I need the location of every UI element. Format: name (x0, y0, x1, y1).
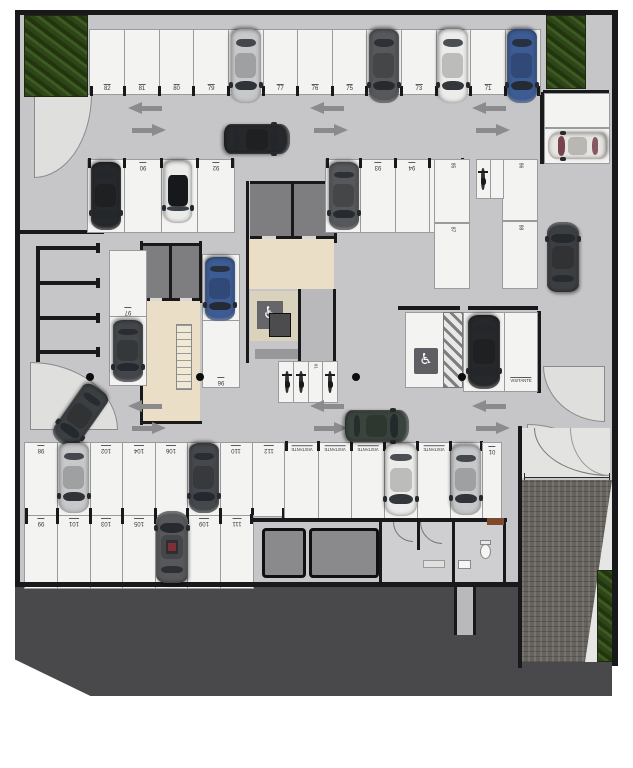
stall-number: 79 (208, 84, 215, 92)
stall-tick (123, 158, 126, 168)
car-mirror-left (560, 157, 566, 161)
arrow-tail (476, 128, 496, 133)
car-mirror-left (390, 408, 396, 412)
car-roof (194, 466, 215, 489)
car-mirror-left (479, 495, 483, 501)
stall-divider (351, 443, 352, 521)
stall-divider (90, 443, 91, 516)
car-mirror-left (154, 525, 158, 531)
car-roof (374, 53, 395, 77)
car-windshield (390, 414, 398, 438)
car-rear-glass (443, 39, 463, 46)
motorcycle (282, 369, 292, 395)
column (196, 373, 204, 381)
wall (473, 585, 476, 635)
motorcycle (478, 166, 488, 192)
car-roof (236, 53, 257, 77)
stall-tick (25, 514, 28, 524)
stall-number: 112 (264, 445, 274, 453)
stall-number: 97 (125, 307, 132, 315)
arrow-head (128, 102, 142, 114)
stall-number: 101 (69, 518, 79, 526)
stall-number: 94 (409, 162, 416, 170)
stall-tick (400, 86, 403, 96)
stall-number: 104 (134, 445, 144, 453)
stall-tick (158, 86, 161, 96)
car-windshield (95, 210, 118, 219)
wall (518, 426, 522, 668)
car-rear-glass (552, 275, 574, 282)
car-windshield (558, 136, 566, 156)
wheelchair-icon: ♿ (419, 352, 432, 367)
stall-divider (193, 30, 194, 94)
wall (15, 582, 520, 587)
car-accessible-row (468, 315, 500, 389)
car-windshield (551, 234, 575, 243)
stall-number: 106 (166, 445, 176, 453)
car-mirror-left (498, 368, 502, 374)
stall-divider (429, 160, 430, 232)
car-windshield (455, 494, 478, 503)
car-rear-glass (334, 172, 354, 179)
car-windshield (389, 494, 413, 503)
car-roof (118, 340, 139, 360)
stall-tick (359, 158, 362, 168)
arrow-tail (486, 106, 506, 111)
car-mirror-left (190, 205, 194, 211)
stall: 96 (203, 321, 239, 387)
stall-divider (490, 160, 491, 198)
stall-divider (197, 160, 198, 232)
vstall: 86 (503, 160, 537, 220)
stall-number: 81 (139, 84, 146, 92)
stall-tick (56, 514, 59, 524)
stall-number: 73 (416, 84, 423, 92)
arrow-head (152, 124, 166, 136)
direction-arrow-right (310, 124, 348, 137)
stall-number: 92 (212, 162, 219, 170)
car-mirror-right (577, 236, 581, 242)
stall-number: VISITANTE (423, 445, 444, 451)
stall-divider (159, 30, 160, 94)
dimension-line (524, 477, 610, 478)
stall-number: 90 (139, 162, 146, 170)
car-windshield (235, 81, 258, 91)
stall-number: 75 (346, 84, 353, 92)
car-mirror-left (397, 82, 401, 88)
car-windshield (209, 302, 232, 310)
stall-number: 82 (104, 84, 111, 92)
wall (379, 522, 382, 582)
car-mirror-right (505, 82, 509, 88)
arrow-head (472, 400, 486, 412)
top-stall-row: 828180797776757371 (90, 30, 540, 94)
car-roof (246, 129, 268, 150)
wall (398, 306, 460, 310)
car-rear-glass (64, 453, 84, 460)
car-windshield (160, 523, 184, 532)
column (458, 373, 466, 381)
car-mirror-left (259, 82, 263, 88)
stall-number: 111 (232, 518, 241, 526)
arrow-tail (324, 404, 344, 409)
car-windshield (373, 81, 396, 91)
stairs (269, 313, 291, 337)
car-visitor-a (385, 444, 417, 516)
wall (540, 92, 544, 164)
wall (36, 350, 100, 354)
visitor-stall: VISITANTE (505, 313, 537, 391)
corridor-down (456, 585, 474, 635)
planter (24, 15, 88, 97)
van-left-col (113, 320, 143, 382)
car-top-74 (369, 29, 399, 103)
stall-number: VISITANTE (291, 445, 312, 451)
car-bottom-100 (59, 443, 89, 513)
car-mirror-left (217, 493, 221, 499)
stall-divider (155, 443, 156, 516)
stall-number: 01 (313, 364, 318, 369)
car-windshield (333, 210, 356, 219)
car-bottom-107 (156, 511, 188, 583)
lobby (249, 239, 334, 289)
car-mirror-right (187, 493, 191, 499)
car-aisle-top (224, 124, 290, 154)
direction-arrow-right (310, 422, 348, 435)
stall-number: 01 (489, 446, 496, 454)
stall-number: VISITANTE (357, 445, 378, 451)
entry-stall (545, 94, 609, 127)
stall-divider (220, 443, 221, 516)
car-mirror-right (466, 368, 470, 374)
car-mirror-left (415, 496, 419, 502)
moto-handlebar (282, 374, 292, 376)
wall (503, 522, 506, 582)
stall-number: 105 (134, 518, 144, 526)
moto-handlebar (478, 171, 488, 173)
car-roof (334, 184, 355, 206)
sink-icon (458, 560, 471, 569)
parking-floor-plan: ♿019092939495858687889796♿VISITANTE98102… (0, 0, 633, 768)
car-mirror-right (186, 525, 190, 531)
car-roof (552, 246, 574, 269)
motorcycle (325, 369, 335, 395)
wall (537, 311, 541, 393)
car-mid-left-convertible (164, 161, 192, 223)
arrow-tail (476, 426, 496, 431)
car-mirror-right (203, 302, 207, 308)
stall-divider (293, 362, 294, 402)
stall-tick (123, 86, 126, 96)
car-mirror-right (57, 493, 61, 499)
wall (15, 10, 618, 15)
car-roof (443, 53, 464, 77)
wall (543, 90, 609, 93)
stall-tick (350, 441, 353, 451)
wall (612, 10, 618, 666)
arrow-tail (132, 426, 152, 431)
car-entry (548, 133, 606, 159)
direction-arrow-right (128, 422, 166, 435)
toilet-tank (480, 540, 491, 545)
stall-number: 102 (101, 445, 111, 453)
stall-tick (121, 514, 124, 524)
car-rear-glass (118, 329, 138, 335)
door (487, 518, 504, 525)
car-roof (390, 468, 412, 492)
vstall: 88 (503, 222, 537, 288)
stall-divider (124, 30, 125, 94)
stall-tick (331, 86, 334, 96)
car-mirror-left (233, 302, 237, 308)
stall-tick (469, 86, 472, 96)
wall (169, 243, 172, 301)
car-right-lane (547, 222, 579, 292)
car-windshield (63, 492, 86, 501)
wall (199, 241, 202, 303)
car-rear-glass (592, 137, 598, 155)
car-top-70 (507, 29, 537, 103)
direction-arrow-left (472, 400, 510, 413)
direction-arrow-left (128, 400, 166, 413)
wall (36, 281, 100, 285)
stall-tick (285, 441, 288, 451)
car-rear-glass (161, 566, 183, 573)
wall (452, 522, 455, 582)
car-roof (96, 184, 117, 206)
stall-divider (332, 30, 333, 94)
arrow-head (128, 400, 142, 412)
wall (15, 10, 20, 587)
arrow-head (334, 124, 348, 136)
stairs (176, 324, 192, 390)
vstall: 85 (435, 160, 469, 222)
arrow-tail (314, 128, 334, 133)
car-aisle-bottom (345, 410, 409, 442)
arrow-tail (486, 404, 506, 409)
stall-divider (318, 443, 319, 521)
stall-number: 103 (101, 518, 111, 526)
car-mid-left-a (91, 162, 121, 230)
arrow-head (310, 400, 324, 412)
moto-seat (299, 381, 304, 388)
stair-landing (255, 349, 301, 359)
car-roof (210, 278, 231, 299)
stall-number: VISITANTE (324, 445, 345, 451)
car-core-col (205, 257, 235, 321)
stall-divider (322, 362, 323, 402)
stall-divider (470, 30, 471, 94)
direction-arrow-left (128, 102, 166, 115)
wall-tick (96, 347, 100, 357)
car-rear-glass (374, 39, 394, 46)
exterior-band (15, 582, 518, 696)
stall-tick (296, 86, 299, 96)
stall-number: 109 (199, 518, 209, 526)
car-mid-center (329, 162, 359, 230)
stall-divider (161, 160, 162, 232)
stall-tick (219, 514, 222, 524)
car-rear-glass (512, 39, 532, 46)
stall-divider (308, 362, 309, 402)
stall-divider (360, 160, 361, 232)
stall-divider (90, 516, 91, 588)
column (352, 373, 360, 381)
car-mirror-left (466, 82, 470, 88)
arrow-head (472, 102, 486, 114)
car-windshield (117, 363, 140, 371)
car-mirror-right (436, 82, 440, 88)
stall-number: 87 (450, 227, 455, 233)
car-mirror-right (367, 82, 371, 88)
stall-number: VISITANTE (510, 377, 531, 383)
direction-arrow-left (472, 102, 510, 115)
arrow-tail (314, 426, 334, 431)
car-windshield (193, 492, 216, 501)
arrow-head (310, 102, 324, 114)
stall-tick (196, 158, 199, 168)
exterior-band-under-ramp (518, 658, 612, 696)
stall-tick (192, 86, 195, 96)
car-mirror-right (383, 496, 387, 502)
arrow-head (496, 422, 510, 434)
car-rear-glass (473, 325, 495, 332)
car-bottom-108 (189, 443, 219, 513)
stall-tick (90, 86, 93, 96)
car-visitor-b (451, 445, 481, 515)
car-windshield (442, 81, 465, 91)
car-mirror-right (271, 152, 277, 156)
wall (468, 306, 538, 310)
stall-tick (231, 158, 234, 168)
arrow-tail (324, 106, 344, 111)
car-interior (168, 175, 188, 206)
stall-tick (89, 514, 92, 524)
car-rear-glass (194, 453, 214, 460)
arrow-tail (142, 106, 162, 111)
stall-number: 99 (38, 518, 45, 526)
arrow-head (496, 124, 510, 136)
bottom-lower-stall-row: 99101103105109111 (25, 516, 253, 588)
car-top-78 (231, 29, 261, 103)
stall-tick (160, 158, 163, 168)
narrow-stall: 01 (483, 443, 501, 521)
moto-seat (481, 178, 486, 185)
water-tank (309, 528, 379, 578)
stall-divider (57, 443, 58, 516)
stall-divider (252, 443, 253, 516)
moto-handlebar (296, 374, 306, 376)
car-top-72 (438, 29, 468, 103)
planter (546, 15, 586, 89)
wall-tick (96, 313, 100, 323)
stall-divider (124, 160, 125, 232)
shelf (423, 560, 445, 568)
car-mirror-right (111, 364, 115, 370)
direction-arrow-right (128, 124, 166, 137)
stall-number: 80 (173, 84, 180, 92)
stall-number: 85 (450, 163, 455, 169)
car-roof (456, 468, 477, 491)
stall-number: 93 (374, 162, 381, 170)
car-roof-display (168, 543, 176, 550)
car-rear-glass (456, 455, 476, 462)
wall (291, 181, 294, 239)
car-roof (64, 466, 85, 489)
car-rear-glass (390, 454, 412, 461)
direction-arrow-right (472, 124, 510, 137)
car-roof (366, 415, 387, 437)
stall-divider (297, 30, 298, 94)
stall-number: 96 (218, 377, 225, 385)
stall-number: 86 (518, 163, 523, 169)
stall-number: 77 (277, 84, 284, 92)
car-windshield (167, 206, 188, 212)
wall (454, 585, 457, 635)
stall-number: 88 (518, 225, 523, 231)
stall-divider (122, 443, 123, 516)
car-rear-glass (236, 39, 256, 46)
vstall: 87 (435, 224, 469, 288)
motorcycle (296, 369, 306, 395)
moto-seat (285, 381, 290, 388)
car-mirror-left (545, 236, 549, 242)
stall-divider (187, 443, 188, 516)
car-windshield (270, 128, 279, 151)
stall-tick (428, 158, 431, 168)
moto-handlebar (325, 374, 335, 376)
car-mirror-left (535, 82, 539, 88)
stall-number: 71 (485, 84, 492, 92)
stall-divider (401, 30, 402, 94)
arrow-tail (132, 128, 152, 133)
car-mirror-right (229, 82, 233, 88)
car-rear-glass (233, 129, 240, 149)
wall (36, 316, 100, 320)
car-windshield (472, 367, 496, 377)
stall-tick (317, 441, 320, 451)
car-mirror-left (87, 493, 91, 499)
stall-number: 110 (231, 445, 241, 453)
arrow-tail (142, 404, 162, 409)
stall-tick (394, 158, 397, 168)
car-windshield (511, 81, 534, 91)
water-tank (262, 528, 306, 578)
car-mirror-right (449, 495, 453, 501)
car-mirror-right (560, 131, 566, 135)
stall-number: 98 (38, 445, 45, 453)
wall-tick (96, 278, 100, 288)
car-roof (473, 339, 495, 363)
stall-divider (395, 160, 396, 232)
stall-number: 76 (312, 84, 319, 92)
stall-divider (220, 516, 221, 588)
stall-divider (122, 516, 123, 588)
car-mirror-left (271, 122, 277, 126)
wall (36, 246, 40, 362)
arrow-head (152, 422, 166, 434)
wall-tick (96, 243, 100, 253)
stall: 97 (110, 251, 146, 317)
car-mirror-right (162, 205, 166, 211)
wall (36, 246, 100, 250)
car-mirror-left (141, 364, 145, 370)
moto-seat (328, 381, 333, 388)
car-roof (512, 53, 533, 77)
direction-arrow-left (310, 400, 348, 413)
car-rear-glass (96, 172, 116, 179)
direction-arrow-right (472, 422, 510, 435)
